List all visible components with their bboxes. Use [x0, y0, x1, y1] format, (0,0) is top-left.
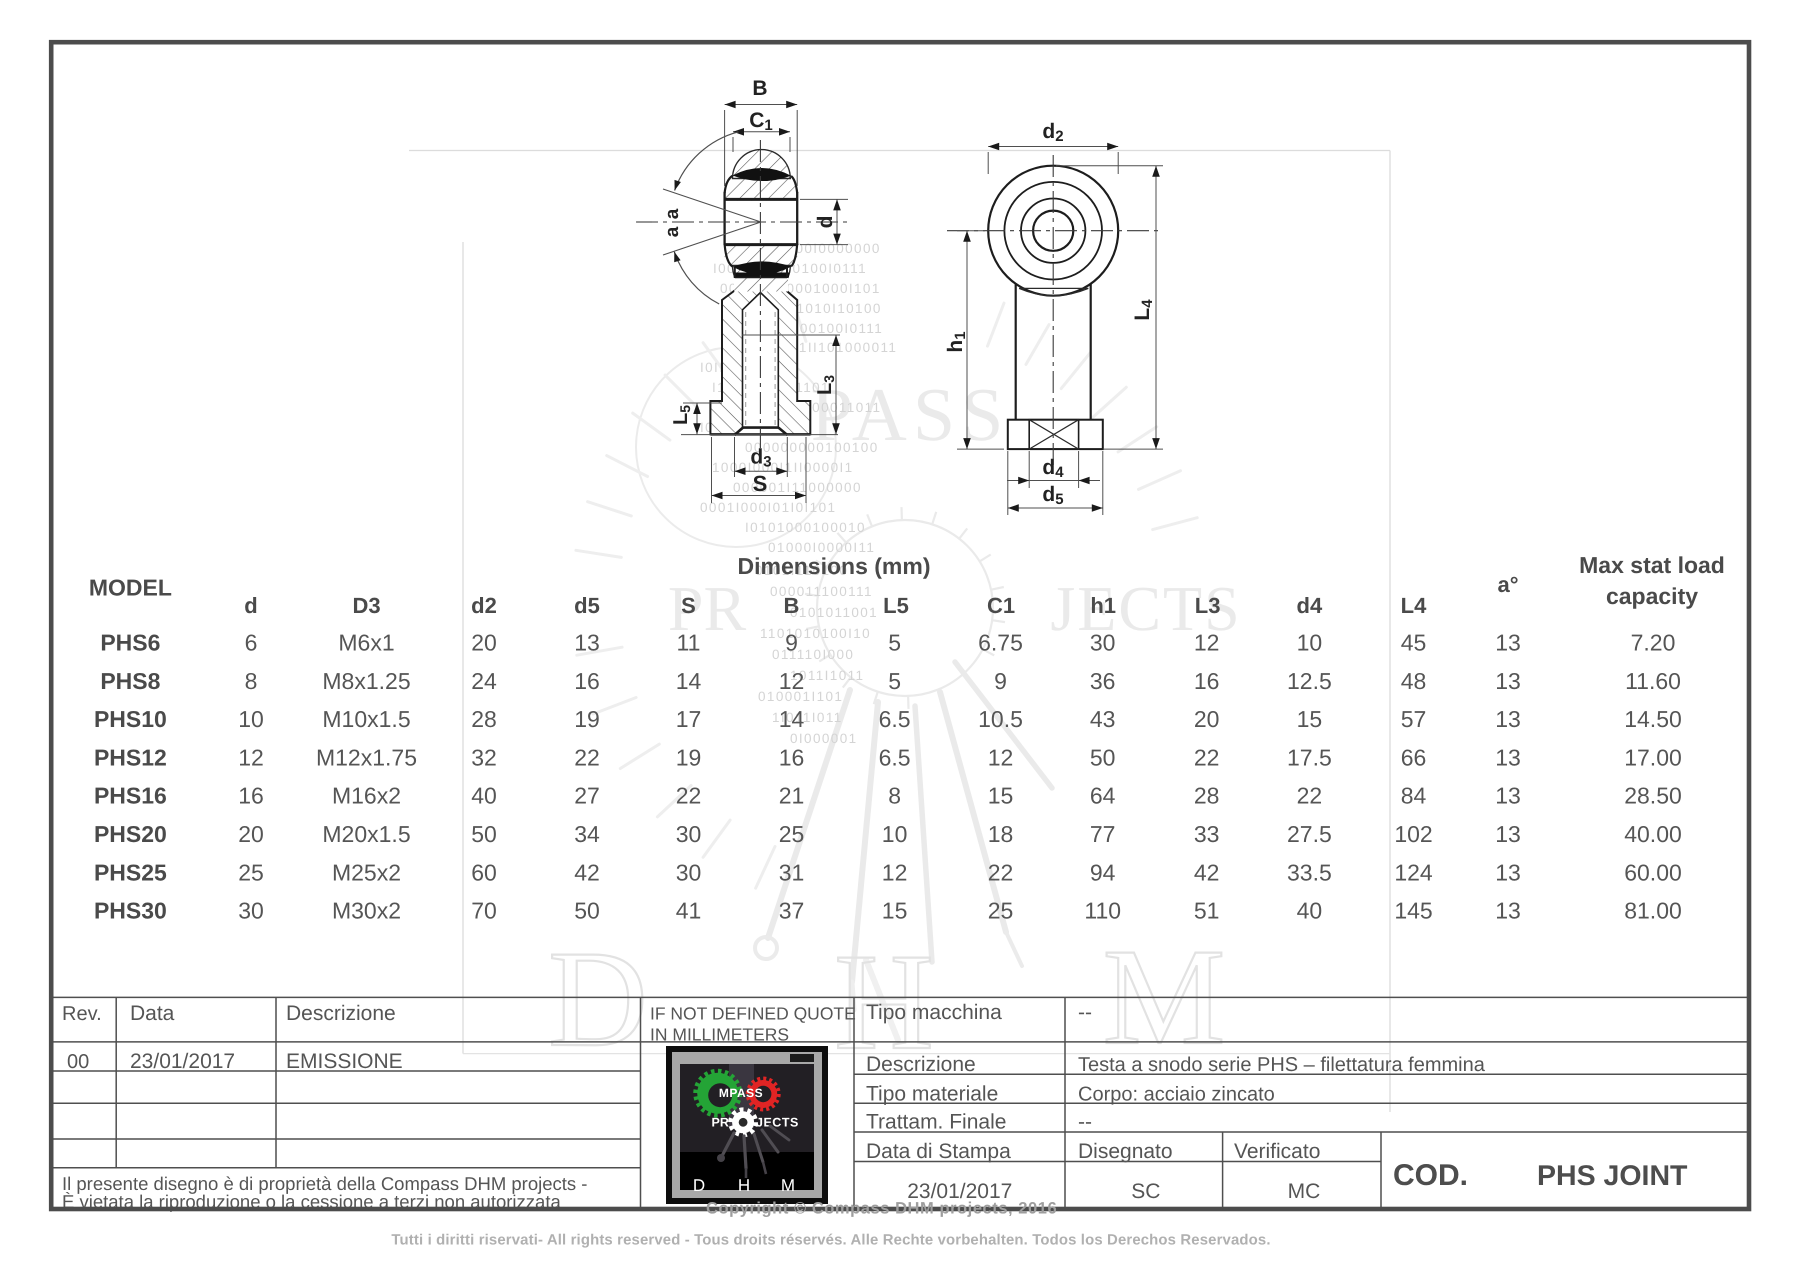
svg-text:Verificato: Verificato	[1234, 1140, 1320, 1163]
svg-text:M12x1.75: M12x1.75	[316, 744, 417, 770]
svg-text:17.5: 17.5	[1287, 744, 1332, 770]
svg-text:EMISSIONE: EMISSIONE	[286, 1050, 403, 1073]
svg-text:50: 50	[574, 898, 600, 924]
svg-text:M6x1: M6x1	[338, 630, 394, 656]
svg-text:30: 30	[676, 859, 702, 885]
svg-text:M8x1.25: M8x1.25	[322, 668, 410, 694]
svg-text:M10x1.5: M10x1.5	[322, 706, 410, 732]
svg-text:20: 20	[471, 630, 497, 656]
svg-text:34: 34	[574, 821, 600, 847]
svg-text:16: 16	[1194, 668, 1220, 694]
svg-text:PHS16: PHS16	[94, 783, 167, 809]
svg-text:Tipo macchina: Tipo macchina	[866, 1001, 1002, 1024]
svg-text:12: 12	[882, 859, 908, 885]
svg-text:17.00: 17.00	[1624, 744, 1682, 770]
svg-text:a: a	[662, 226, 683, 237]
svg-text:45: 45	[1401, 630, 1427, 656]
svg-text:Max stat load: Max stat load	[1579, 552, 1725, 578]
svg-text:24: 24	[471, 668, 497, 694]
svg-text:MPASS: MPASS	[719, 1086, 763, 1100]
svg-text:capacity: capacity	[1606, 583, 1698, 609]
svg-text:d: d	[814, 216, 837, 229]
svg-text:15: 15	[988, 783, 1014, 809]
svg-text:5: 5	[888, 668, 901, 694]
svg-text:Data di Stampa: Data di Stampa	[866, 1140, 1011, 1163]
svg-text:PHS12: PHS12	[94, 744, 167, 770]
svg-text:Testa a snodo serie PHS – file: Testa a snodo serie PHS – filettatura fe…	[1078, 1054, 1486, 1076]
svg-text:16: 16	[779, 744, 805, 770]
svg-text:12: 12	[779, 668, 805, 694]
svg-text:13: 13	[1495, 706, 1521, 732]
svg-text:S: S	[681, 593, 696, 618]
svg-text:Corpo: acciaio zincato: Corpo: acciaio zincato	[1078, 1084, 1275, 1106]
svg-text:30: 30	[1090, 630, 1116, 656]
svg-text:64: 64	[1090, 783, 1116, 809]
svg-text:L4: L4	[1401, 593, 1427, 618]
svg-text:1101010100I10: 1101010100I10	[760, 626, 871, 641]
svg-text:8: 8	[888, 783, 901, 809]
svg-text:d: d	[244, 593, 257, 618]
svg-text:Disegnato: Disegnato	[1078, 1140, 1173, 1163]
svg-text:94: 94	[1090, 859, 1116, 885]
svg-text:a: a	[662, 208, 683, 219]
svg-text:15: 15	[882, 898, 908, 924]
svg-text:17: 17	[676, 706, 702, 732]
svg-text:28: 28	[1194, 783, 1220, 809]
svg-text:6: 6	[245, 630, 258, 656]
svg-text:PHS JOINT: PHS JOINT	[1537, 1160, 1688, 1192]
svg-text:D: D	[548, 922, 648, 1075]
svg-text:14.50: 14.50	[1624, 706, 1682, 732]
svg-text:PHS25: PHS25	[94, 859, 167, 885]
svg-text:102: 102	[1394, 821, 1432, 847]
svg-text:MC: MC	[1288, 1180, 1321, 1203]
svg-text:37: 37	[779, 898, 805, 924]
svg-text:48: 48	[1401, 668, 1427, 694]
svg-text:28.50: 28.50	[1624, 783, 1682, 809]
svg-text:d5: d5	[574, 593, 600, 618]
svg-text:33.5: 33.5	[1287, 859, 1332, 885]
svg-text:70: 70	[471, 898, 497, 924]
svg-text:13: 13	[1495, 859, 1521, 885]
svg-text:PHS6: PHS6	[100, 630, 160, 656]
svg-text:13: 13	[1495, 630, 1521, 656]
svg-text:M16x2: M16x2	[332, 783, 401, 809]
svg-text:B: B	[784, 593, 800, 618]
svg-text:13: 13	[1495, 668, 1521, 694]
svg-text:Tipo materiale: Tipo materiale	[866, 1083, 998, 1106]
svg-text:50: 50	[471, 821, 497, 847]
svg-text:27: 27	[574, 783, 600, 809]
svg-text:MODEL: MODEL	[89, 575, 172, 601]
svg-text:40: 40	[471, 783, 497, 809]
svg-text:22: 22	[574, 744, 600, 770]
svg-text:77: 77	[1090, 821, 1116, 847]
svg-text:d2: d2	[471, 593, 497, 618]
svg-text:28: 28	[471, 706, 497, 732]
svg-text:H: H	[738, 1176, 750, 1195]
svg-text:PHS10: PHS10	[94, 706, 167, 732]
svg-text:IN MILLIMETERS: IN MILLIMETERS	[650, 1025, 789, 1045]
svg-text:I0101000100010: I0101000100010	[745, 520, 866, 535]
svg-text:h1: h1	[1090, 593, 1116, 618]
svg-text:19: 19	[676, 744, 702, 770]
svg-text:SC: SC	[1131, 1180, 1160, 1203]
svg-text:10.5: 10.5	[978, 706, 1023, 732]
svg-text:6.5: 6.5	[879, 744, 911, 770]
svg-text:60: 60	[471, 859, 497, 885]
svg-text:22: 22	[1297, 783, 1323, 809]
svg-text:11: 11	[677, 630, 701, 656]
svg-text:0101011001: 0101011001	[790, 605, 878, 620]
svg-text:D3: D3	[352, 593, 380, 618]
svg-text:31: 31	[779, 859, 805, 885]
svg-text:Data: Data	[130, 1002, 175, 1025]
svg-text:11.60: 11.60	[1625, 668, 1681, 694]
svg-text:14: 14	[779, 706, 805, 732]
svg-text:25: 25	[988, 898, 1014, 924]
svg-text:25: 25	[238, 859, 264, 885]
svg-text:--: --	[1078, 1001, 1092, 1024]
svg-text:14: 14	[676, 668, 702, 694]
svg-text:COD.: COD.	[1393, 1159, 1468, 1192]
svg-text:13: 13	[1495, 783, 1521, 809]
svg-text:110: 110	[1084, 898, 1121, 924]
svg-text:12: 12	[988, 744, 1014, 770]
svg-text:22: 22	[1194, 744, 1220, 770]
svg-text:32: 32	[471, 744, 497, 770]
svg-text:M30x2: M30x2	[332, 898, 401, 924]
svg-text:16: 16	[238, 783, 264, 809]
svg-text:145: 145	[1394, 898, 1432, 924]
svg-text:42: 42	[574, 859, 600, 885]
svg-text:Descrizione: Descrizione	[866, 1053, 976, 1076]
svg-text:27.5: 27.5	[1287, 821, 1332, 847]
svg-text:10: 10	[238, 706, 264, 732]
svg-text:L5: L5	[883, 593, 909, 618]
svg-text:12: 12	[1194, 630, 1220, 656]
svg-text:d4: d4	[1297, 593, 1323, 618]
svg-text:Descrizione: Descrizione	[286, 1002, 396, 1025]
svg-text:PHS8: PHS8	[100, 668, 160, 694]
svg-text:124: 124	[1394, 859, 1433, 885]
svg-text:19: 19	[574, 706, 600, 732]
svg-text:33: 33	[1194, 821, 1220, 847]
svg-text:13: 13	[1495, 821, 1521, 847]
svg-text:66: 66	[1401, 744, 1427, 770]
svg-text:B: B	[752, 77, 767, 100]
svg-text:20: 20	[238, 821, 264, 847]
svg-text:PHS30: PHS30	[94, 898, 167, 924]
svg-text:40: 40	[1297, 898, 1323, 924]
svg-text:60.00: 60.00	[1624, 859, 1682, 885]
svg-text:15: 15	[1297, 706, 1323, 732]
svg-text:41: 41	[676, 898, 702, 924]
svg-text:D: D	[693, 1176, 705, 1195]
svg-text:42: 42	[1194, 859, 1220, 885]
svg-text:M: M	[1103, 920, 1226, 1073]
svg-text:13: 13	[574, 630, 600, 656]
svg-text:12: 12	[238, 744, 264, 770]
svg-text:10: 10	[1297, 630, 1323, 656]
svg-text:8: 8	[245, 668, 258, 694]
svg-text:L3: L3	[1195, 593, 1221, 618]
svg-text:9: 9	[994, 668, 1007, 694]
svg-text:Copyright © Compass DHM projec: Copyright © Compass DHM projects, 2016	[706, 1200, 1057, 1218]
svg-text:--: --	[1078, 1111, 1092, 1134]
svg-text:21: 21	[779, 783, 805, 809]
svg-text:IF NOT DEFINED QUOTE: IF NOT DEFINED QUOTE	[650, 1004, 856, 1024]
svg-text:30: 30	[676, 821, 702, 847]
svg-text:01II101000011: 01II101000011	[790, 340, 897, 355]
svg-text:84: 84	[1401, 783, 1427, 809]
svg-text:50: 50	[1090, 744, 1116, 770]
svg-text:9: 9	[785, 630, 798, 656]
svg-text:18: 18	[988, 821, 1014, 847]
svg-text:30: 30	[238, 898, 264, 924]
svg-text:0001I000I01I0I101: 0001I000I01I0I101	[700, 500, 836, 515]
svg-text:Dimensions (mm): Dimensions (mm)	[738, 553, 931, 579]
svg-text:M25x2: M25x2	[332, 859, 401, 885]
svg-text:JECTS: JECTS	[756, 1116, 799, 1130]
svg-text:00: 00	[67, 1051, 89, 1073]
svg-text:13: 13	[1495, 898, 1521, 924]
svg-text:25: 25	[779, 821, 805, 847]
svg-text:51: 51	[1194, 898, 1220, 924]
svg-text:20: 20	[1194, 706, 1220, 732]
svg-text:Trattam. Finale: Trattam. Finale	[866, 1111, 1006, 1134]
svg-text:81.00: 81.00	[1624, 898, 1682, 924]
svg-text:PHS20: PHS20	[94, 821, 167, 847]
svg-text:6.75: 6.75	[978, 630, 1023, 656]
svg-text:43: 43	[1090, 706, 1116, 732]
svg-text:36: 36	[1090, 668, 1116, 694]
svg-text:C1: C1	[987, 593, 1015, 618]
svg-text:13: 13	[1495, 744, 1521, 770]
svg-text:6.5: 6.5	[879, 706, 911, 732]
svg-text:7.20: 7.20	[1631, 630, 1676, 656]
svg-text:a°: a°	[1497, 572, 1518, 597]
svg-text:16: 16	[574, 668, 600, 694]
svg-text:S: S	[753, 471, 768, 496]
svg-text:23/01/2017: 23/01/2017	[130, 1050, 235, 1073]
svg-text:57: 57	[1401, 706, 1427, 732]
svg-text:Rev.: Rev.	[62, 1003, 102, 1025]
svg-text:M: M	[781, 1176, 795, 1195]
svg-text:5: 5	[888, 630, 901, 656]
svg-text:22: 22	[988, 859, 1014, 885]
svg-text:22: 22	[676, 783, 702, 809]
svg-text:Tutti i diritti riservati- All: Tutti i diritti riservati- All rights re…	[391, 1233, 1270, 1249]
svg-text:10: 10	[882, 821, 908, 847]
svg-text:40.00: 40.00	[1624, 821, 1682, 847]
svg-text:12.5: 12.5	[1287, 668, 1332, 694]
svg-text:M20x1.5: M20x1.5	[322, 821, 410, 847]
svg-text:PR: PR	[712, 1116, 729, 1130]
